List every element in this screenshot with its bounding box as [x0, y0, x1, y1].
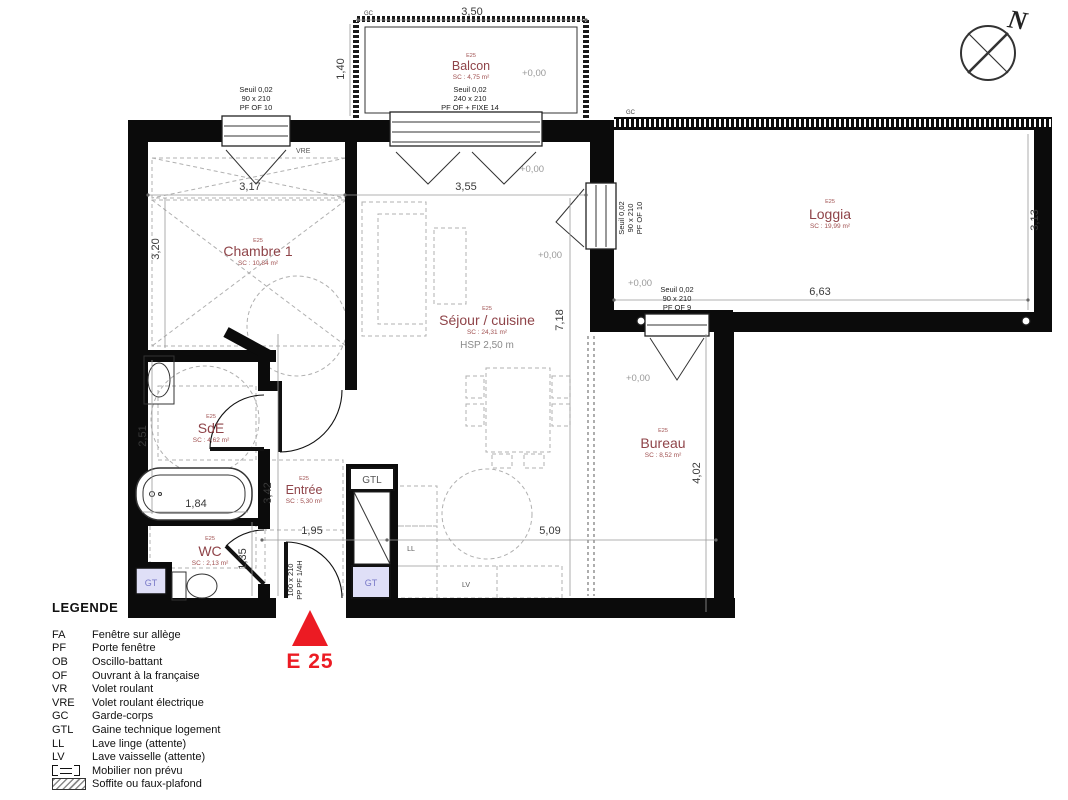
svg-text:PP PF 1/4H: PP PF 1/4H	[295, 560, 304, 599]
legend-title: LEGENDE	[52, 600, 302, 615]
legend-row: Soffite ou faux-plafond	[52, 778, 302, 792]
svg-text:Balcon: Balcon	[452, 59, 490, 73]
window-chambre	[222, 116, 290, 184]
gt-box-left: GT	[136, 568, 166, 594]
svg-text:PF OF 10: PF OF 10	[240, 103, 273, 112]
dim-4-02: 4,02	[691, 462, 703, 483]
dim-5-09: 5,09	[539, 525, 560, 537]
hsp-label: HSP 2,50 m	[460, 340, 514, 351]
legend-row: FAFenêtre sur allège	[52, 628, 302, 642]
legend-row: GTLGaine technique logement	[52, 723, 302, 737]
svg-text:SC : 4,62 m²: SC : 4,62 m²	[193, 437, 230, 444]
svg-text:SdE: SdE	[198, 420, 224, 436]
loggia-post	[1022, 317, 1030, 325]
svg-text:E25: E25	[299, 476, 309, 482]
gt-label-right: GT	[365, 578, 378, 588]
dim-3-13: 3,13	[1029, 209, 1041, 230]
svg-text:Seuil 0,02: Seuil 0,02	[617, 201, 626, 234]
level-balcon: +0,00	[522, 68, 546, 79]
gtl-closet: GTL GT	[350, 468, 394, 598]
sejour-bureau-boundary	[588, 336, 594, 596]
room-label-sde: E25 SdE SC : 4,62 m²	[193, 414, 230, 444]
room-label-wc: E25 WC SC : 2,13 m²	[192, 536, 229, 567]
legend-row: OBOscillo-battant	[52, 655, 302, 669]
dim-1-95: 1,95	[301, 525, 322, 537]
svg-text:SC : 10,84 m²: SC : 10,84 m²	[238, 260, 279, 267]
svg-text:SC : 8,52 m²: SC : 8,52 m²	[645, 452, 682, 459]
svg-text:Seuil 0,02: Seuil 0,02	[239, 85, 272, 94]
svg-text:90 x 210: 90 x 210	[663, 294, 692, 303]
toilet	[172, 572, 217, 600]
dim-6-63: 6,63	[809, 286, 830, 298]
room-label-bureau: E25 Bureau SC : 8,52 m²	[640, 428, 685, 459]
dim-3-17: 3,17	[239, 181, 260, 193]
svg-text:SC : 5,30 m²: SC : 5,30 m²	[286, 498, 323, 505]
gc-tag-loggia: GC	[626, 110, 636, 116]
legend-row: PFPorte fenêtre	[52, 642, 302, 656]
gtl-label: GTL	[362, 475, 382, 486]
gt-label-left: GT	[145, 578, 158, 588]
dim-3-42: 3,42	[262, 482, 274, 503]
vre-tag: VRE	[296, 148, 311, 155]
svg-text:PF OF + FIXE 14: PF OF + FIXE 14	[441, 103, 499, 112]
loggia-post	[637, 317, 645, 325]
opening-labels: Seuil 0,02 90 x 210 PF OF 10 Seuil 0,02 …	[239, 11, 693, 600]
dim-3-50: 3,50	[461, 6, 482, 18]
level-loggia: +0,00	[628, 278, 652, 289]
room-label-sejour: E25 Séjour / cuisine SC : 24,31 m² HSP 2…	[439, 306, 535, 351]
hatch-symbol-icon	[52, 778, 92, 790]
legend-row: VREVolet roulant électrique	[52, 696, 302, 710]
svg-text:90 x 210: 90 x 210	[626, 204, 635, 233]
dim-1-40: 1,40	[335, 58, 347, 79]
room-label-loggia: E25 Loggia SC : 19,99 m²	[809, 199, 851, 230]
dim-7-18: 7,18	[554, 309, 566, 330]
window-loggia-bureau	[645, 314, 709, 380]
legend: LEGENDE FAFenêtre sur allège PFPorte fen…	[52, 600, 302, 791]
svg-text:Chambre 1: Chambre 1	[223, 243, 292, 259]
svg-text:SC : 24,31 m²: SC : 24,31 m²	[467, 329, 508, 336]
svg-text:240 x 210: 240 x 210	[454, 94, 487, 103]
sink	[144, 356, 174, 404]
svg-text:Loggia: Loggia	[809, 206, 851, 222]
compass-icon: N	[961, 4, 1030, 80]
svg-text:PF OF 9: PF OF 9	[663, 303, 691, 312]
door-chambre	[280, 390, 342, 452]
lv-tag: LV	[462, 582, 470, 589]
ll-tag: LL	[407, 546, 415, 553]
floor-plan-page: GTL GT GT	[0, 0, 1068, 800]
level-sejour-top: +0,00	[520, 164, 544, 175]
legend-row: OFOuvrant à la française	[52, 669, 302, 683]
svg-text:Entrée: Entrée	[286, 483, 323, 497]
dim-3-55: 3,55	[455, 181, 476, 193]
dim-1-35: 1,35	[237, 548, 249, 569]
room-label-entree: E25 Entrée SC : 5,30 m²	[286, 476, 323, 505]
svg-text:Seuil 0,02: Seuil 0,02	[453, 85, 486, 94]
window-loggia-side	[556, 183, 616, 249]
svg-text:SC : 19,99 m²: SC : 19,99 m²	[810, 223, 851, 230]
gc-tag-balcon: GC	[364, 11, 374, 17]
room-label-balcon: E25 Balcon SC : 4,75 m²	[452, 53, 490, 81]
svg-text:E25: E25	[825, 199, 835, 205]
svg-text:Bureau: Bureau	[640, 435, 685, 451]
svg-text:E25: E25	[658, 428, 668, 434]
north-label: N	[1005, 4, 1031, 36]
legend-row: LVLave vaisselle (attente)	[52, 750, 302, 764]
svg-text:PF OF 10: PF OF 10	[635, 202, 644, 235]
legend-row: VRVolet roulant	[52, 682, 302, 696]
dim-2-51: 2,51	[137, 425, 149, 446]
svg-text:SC : 4,75 m²: SC : 4,75 m²	[453, 74, 490, 81]
svg-text:Séjour / cuisine: Séjour / cuisine	[439, 312, 535, 328]
legend-row: GCGarde-corps	[52, 710, 302, 724]
dim-3-20: 3,20	[150, 238, 162, 259]
svg-text:SC : 2,13 m²: SC : 2,13 m²	[192, 560, 229, 567]
level-sejour: +0,00	[538, 250, 562, 261]
svg-text:100 x 210: 100 x 210	[286, 564, 295, 597]
room-label-chambre: E25 Chambre 1 SC : 10,84 m²	[223, 238, 292, 267]
level-bureau: +0,00	[626, 373, 650, 384]
svg-text:E25: E25	[205, 536, 215, 542]
dim-1-84: 1,84	[185, 498, 206, 510]
svg-text:Seuil 0,02: Seuil 0,02	[660, 285, 693, 294]
legend-row: LLLave linge (attente)	[52, 737, 302, 751]
furniture-symbol-icon	[52, 765, 92, 776]
svg-text:90 x 210: 90 x 210	[242, 94, 271, 103]
legend-row: Mobilier non prévu	[52, 764, 302, 778]
svg-text:WC: WC	[198, 543, 221, 559]
